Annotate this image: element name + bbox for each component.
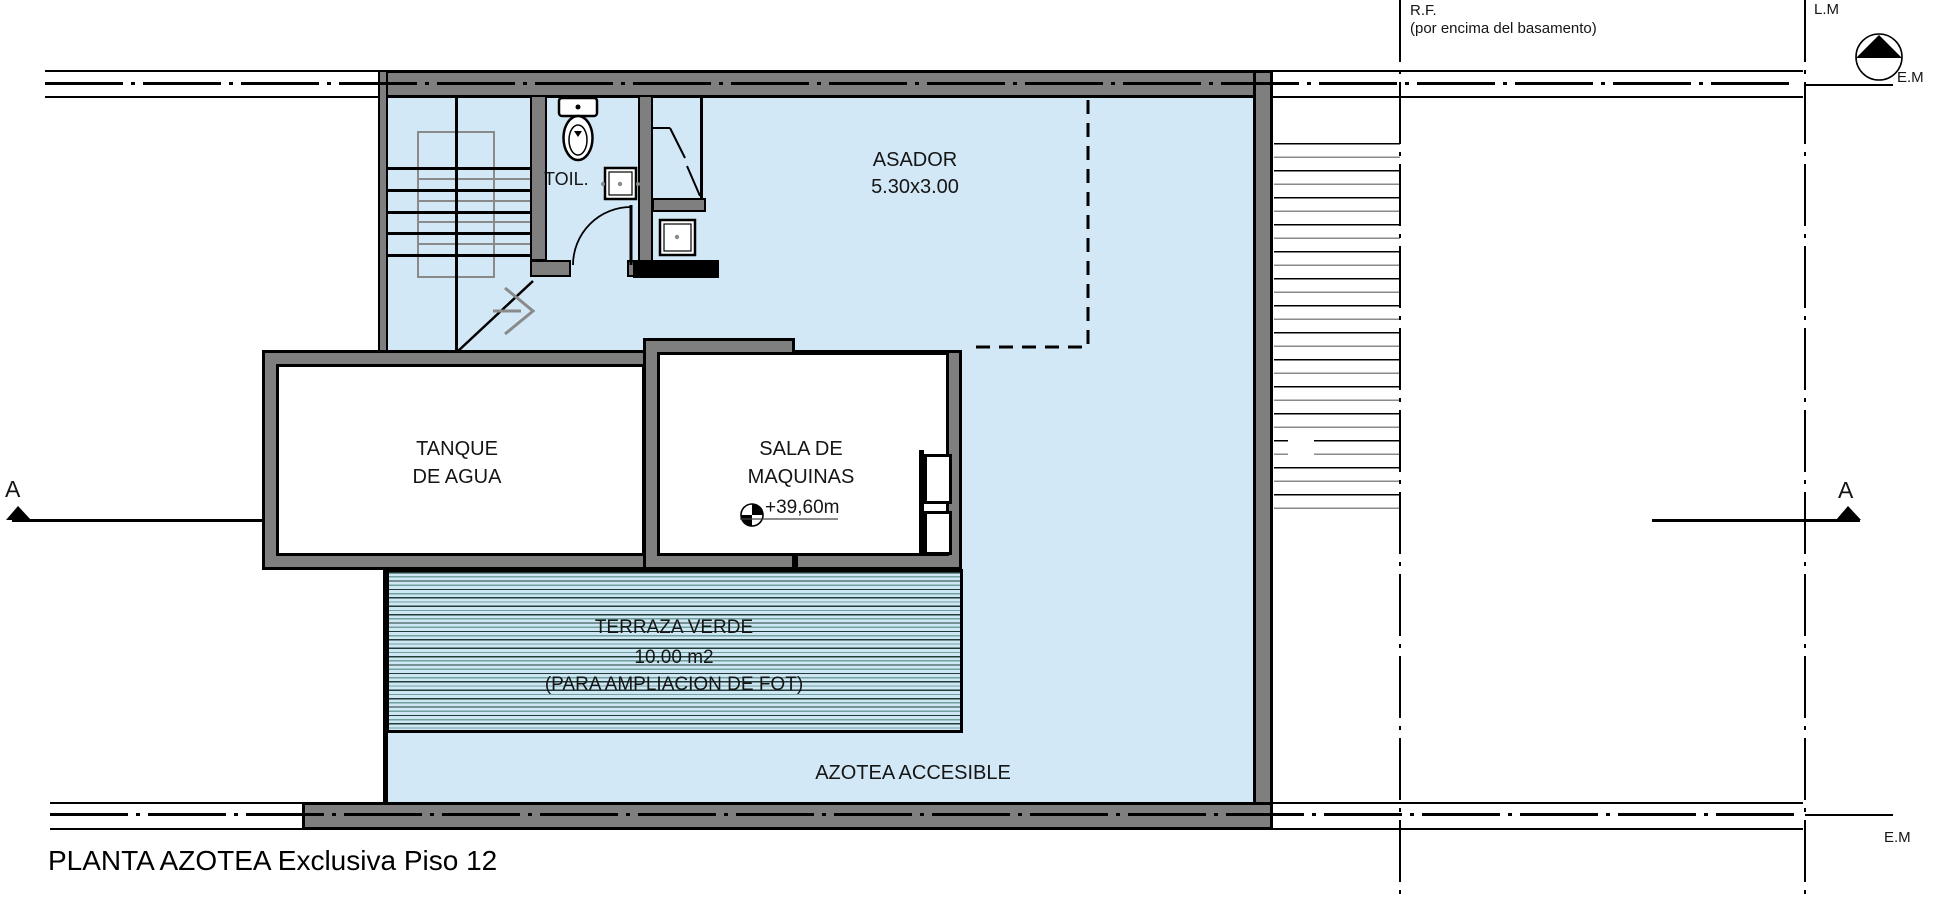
duct-right-edge bbox=[700, 97, 703, 198]
section-triangle-right bbox=[1836, 506, 1861, 520]
exterior-stair-landing-gap bbox=[1288, 433, 1314, 467]
section-label-right: A bbox=[1838, 477, 1853, 504]
sala-label-line2: MAQUINAS bbox=[711, 463, 891, 491]
building-right-wall bbox=[1253, 70, 1273, 830]
em-line-bottom bbox=[1805, 814, 1893, 816]
rf-label-line2: (por encima del basamento) bbox=[1410, 20, 1597, 38]
terraza-label-line1: TERRAZA VERDE bbox=[474, 614, 874, 642]
stair-tread-gray-1 bbox=[417, 178, 530, 180]
stair-tread-1 bbox=[387, 167, 530, 170]
sala-label-line1: SALA DE bbox=[711, 435, 891, 463]
stair-center-line bbox=[455, 97, 458, 352]
duct-band bbox=[652, 198, 706, 212]
toilet-bottom-wall bbox=[530, 260, 571, 277]
municipal-line-band-bottom-left bbox=[50, 802, 302, 830]
section-line-right bbox=[1652, 519, 1860, 522]
stair-tread-3 bbox=[387, 211, 530, 214]
floor-plan-canvas: TOIL. ASADOR 5.30x3.00 TANQUE DE AGUA SA… bbox=[0, 0, 1936, 902]
building-bottom-wall bbox=[302, 802, 1273, 830]
stair-tread-5 bbox=[387, 254, 530, 257]
tanque-label-line2: DE AGUA bbox=[367, 463, 547, 491]
stair-tread-4 bbox=[387, 232, 530, 235]
stair-tread-gray-2 bbox=[417, 200, 530, 202]
em-line-top bbox=[1805, 84, 1893, 86]
lm-label: L.M bbox=[1814, 1, 1839, 19]
terrace-left-edge bbox=[383, 570, 388, 803]
azotea-label: AZOTEA ACCESIBLE bbox=[793, 759, 1033, 787]
municipal-line-band-bottom-right bbox=[1273, 802, 1803, 830]
rf-label-line1: R.F. bbox=[1410, 2, 1437, 20]
asador-counter-bar bbox=[633, 260, 719, 278]
asador-label-name: ASADOR bbox=[825, 146, 1005, 174]
stair-tread-2 bbox=[387, 189, 530, 192]
section-label-left: A bbox=[5, 476, 20, 503]
level-mark-label: +39,60m bbox=[765, 497, 839, 519]
toilet-right-wall bbox=[638, 95, 653, 265]
section-line-left bbox=[12, 519, 263, 522]
lm-vertical-line bbox=[1804, 0, 1806, 902]
stair-tread-gray-4 bbox=[417, 243, 530, 245]
municipal-centerline-bottom bbox=[50, 813, 1797, 816]
stair-tread-gray-3 bbox=[417, 221, 530, 223]
asador-label-size: 5.30x3.00 bbox=[825, 173, 1005, 201]
em-label-top: E.M bbox=[1897, 69, 1924, 87]
municipal-centerline-top bbox=[45, 82, 1797, 85]
terraza-label-line2: 10.00 m2 bbox=[474, 644, 874, 672]
em-label-bottom: E.M bbox=[1884, 829, 1911, 847]
rf-vertical-line bbox=[1399, 0, 1401, 902]
sala-vent-slot-1 bbox=[924, 454, 952, 504]
tanque-label-line1: TANQUE bbox=[367, 435, 547, 463]
toilet-label: TOIL. bbox=[544, 169, 589, 190]
terraza-label-line3: (PARA AMPLIACION DE FOT) bbox=[474, 671, 874, 699]
north-arrow-icon bbox=[1856, 34, 1902, 80]
sala-vent-slot-2 bbox=[924, 511, 952, 555]
section-triangle-left bbox=[6, 506, 31, 520]
plan-title: PLANTA AZOTEA Exclusiva Piso 12 bbox=[48, 845, 497, 877]
